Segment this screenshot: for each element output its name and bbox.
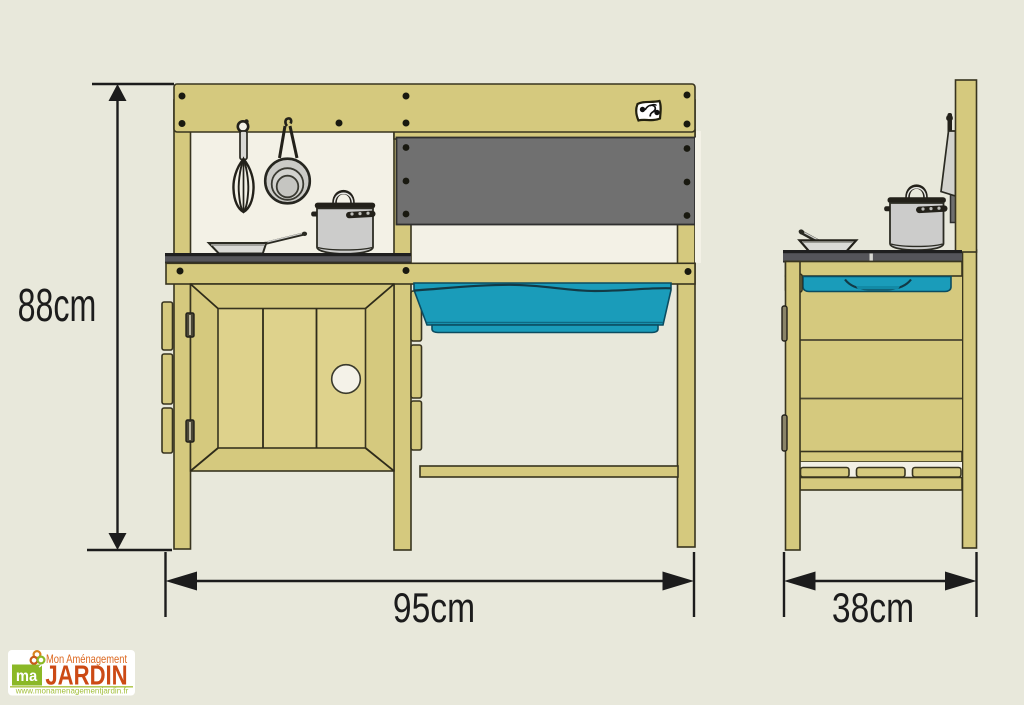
svg-text:ma: ma (16, 667, 38, 685)
svg-text:95cm: 95cm (393, 586, 475, 632)
svg-text:88cm: 88cm (18, 280, 97, 331)
svg-text:www.monamenagementjardin.fr: www.monamenagementjardin.fr (15, 686, 129, 695)
svg-text:38cm: 38cm (832, 586, 914, 632)
